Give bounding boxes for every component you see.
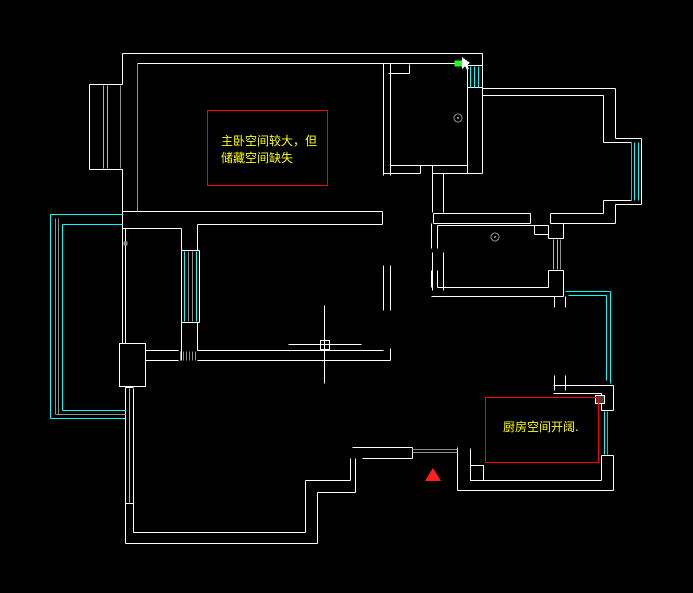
crosshair-cursor: [289, 306, 362, 384]
wall-geometry: [51, 54, 642, 544]
selection-grip: [455, 61, 463, 67]
entry-marker-triangle: [425, 468, 441, 481]
annotation-box[interactable]: [208, 111, 328, 186]
drain-symbol-dot: [457, 117, 459, 119]
cursor-arrow: [462, 57, 470, 70]
annotation-text: 厨房空间开阔.: [503, 419, 579, 434]
floorplan-drawing: 主卧空间较大，但 储藏空间缺失 厨房空间开阔.: [0, 0, 693, 593]
annotation-master-note[interactable]: 主卧空间较大，但 储藏空间缺失: [208, 111, 328, 186]
annotation-kitchen-note[interactable]: 厨房空间开阔.: [486, 398, 599, 463]
wall-pillar: [120, 344, 146, 387]
column: [596, 396, 605, 404]
annotation-text: 储藏空间缺失: [221, 150, 293, 165]
door-jamb: [471, 466, 484, 481]
cad-floorplan-canvas[interactable]: 主卧空间较大，但 储藏空间缺失 厨房空间开阔.: [0, 0, 693, 593]
drain-symbol-dot: [494, 236, 496, 238]
wall-dot: [124, 242, 128, 246]
annotation-text: 主卧空间较大，但: [221, 133, 317, 148]
